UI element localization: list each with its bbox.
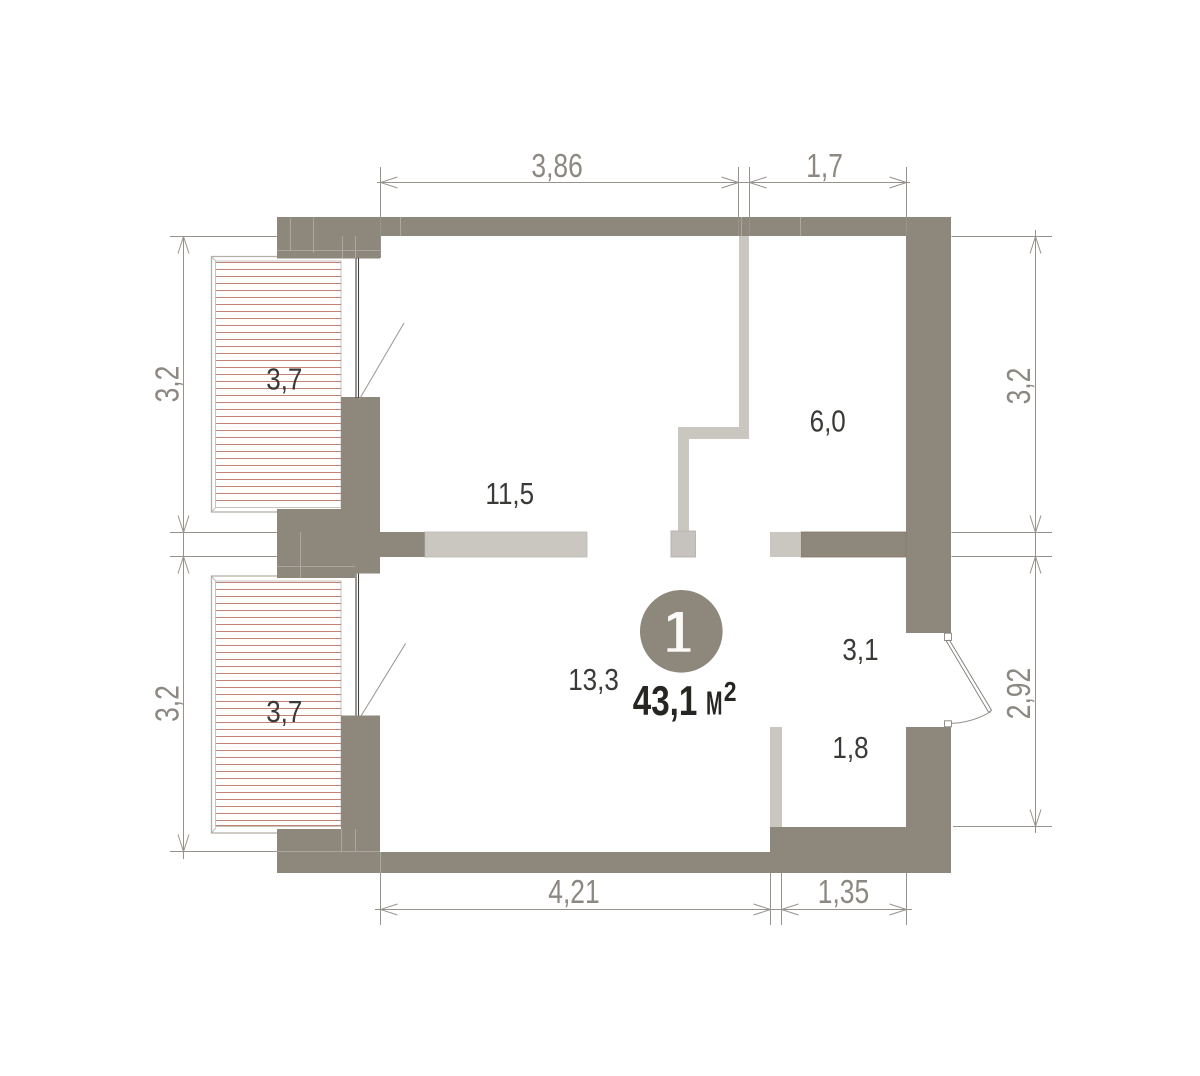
svg-text:1,8: 1,8	[832, 731, 868, 766]
svg-text:2: 2	[724, 677, 737, 708]
svg-text:43,1: 43,1	[633, 678, 698, 725]
svg-text:6,0: 6,0	[810, 404, 846, 439]
svg-text:3,7: 3,7	[266, 695, 302, 730]
svg-text:2,92: 2,92	[1001, 668, 1037, 719]
svg-text:3,1: 3,1	[842, 633, 878, 668]
svg-text:1,35: 1,35	[818, 874, 869, 910]
svg-text:3,7: 3,7	[266, 362, 302, 397]
svg-text:М: М	[706, 684, 722, 722]
svg-text:1,7: 1,7	[806, 148, 843, 184]
svg-text:3,86: 3,86	[531, 148, 582, 184]
svg-text:11,5: 11,5	[485, 477, 534, 512]
svg-text:4,21: 4,21	[548, 874, 599, 910]
svg-text:13,3: 13,3	[568, 663, 619, 698]
svg-text:3,2: 3,2	[1001, 368, 1037, 405]
svg-text:3,2: 3,2	[150, 366, 186, 403]
svg-text:3,2: 3,2	[150, 685, 186, 722]
